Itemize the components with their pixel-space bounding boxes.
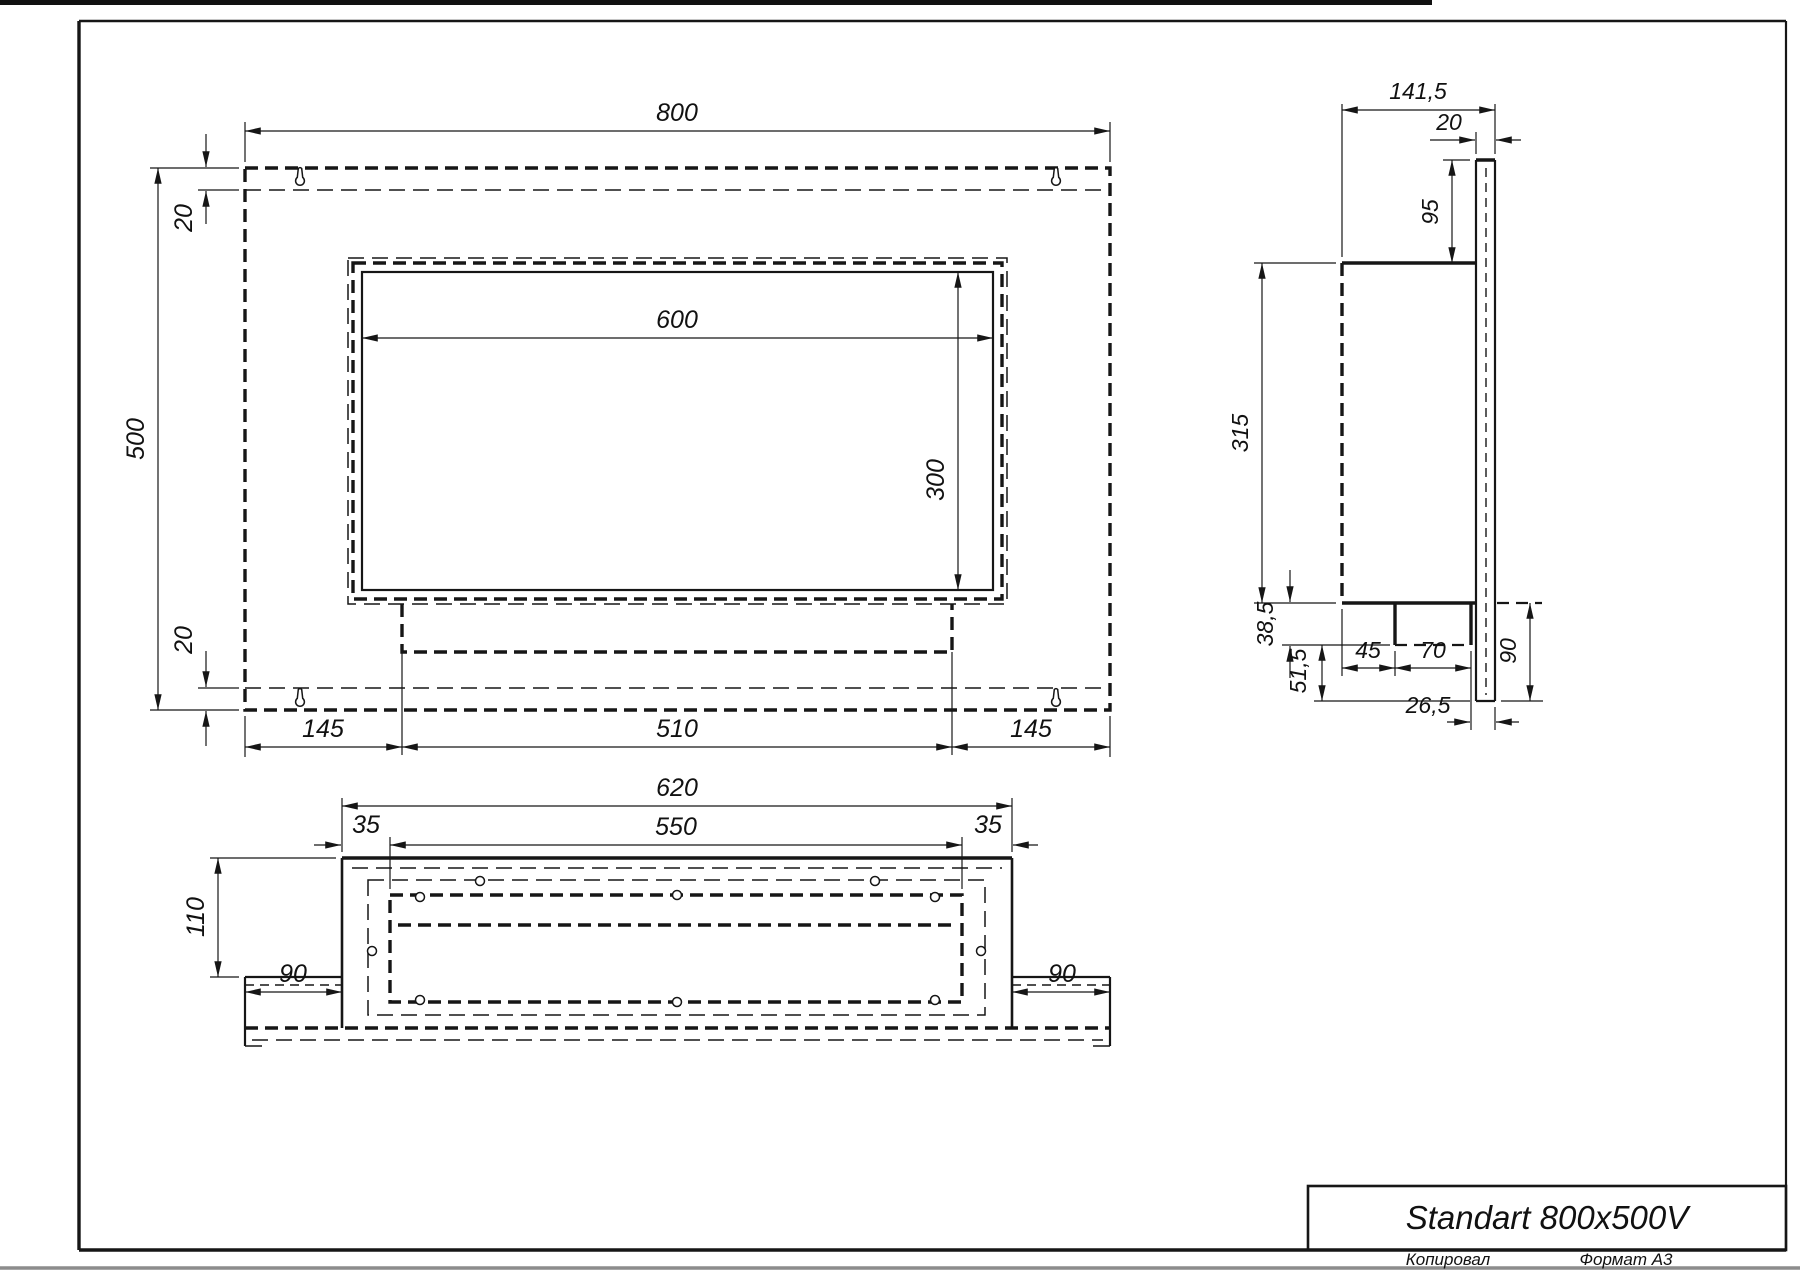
dim-front-top-flange: 20 [170, 204, 198, 233]
stamp-format-label: Формат A3 [1579, 1250, 1673, 1269]
dim-left-margin: 145 [302, 715, 344, 743]
screw-hole-icon [931, 996, 940, 1005]
scan-edge-bar [0, 0, 1432, 5]
dim-right-wing: 90 [1048, 960, 1076, 988]
dim-left-wing: 90 [279, 960, 307, 988]
screw-hole-icon [977, 947, 986, 956]
front-view: 800 500 20 20 600 300 145 510 145 [122, 99, 1110, 757]
dim-opening-height: 300 [922, 459, 950, 501]
keyhole-mount-icon [296, 689, 305, 707]
bottom-view: 620 550 35 35 110 90 90 [182, 774, 1110, 1046]
front-panel-outline [245, 168, 1110, 710]
dim-right-margin: 145 [1010, 715, 1052, 743]
screw-hole-icon [673, 998, 682, 1007]
dim-plate-drop: 90 [1495, 638, 1521, 664]
dim-front-height: 500 [122, 418, 150, 460]
dim-tray-width: 510 [656, 715, 698, 743]
dim-step-a: 38,5 [1252, 601, 1278, 646]
dim-body-width: 620 [656, 774, 698, 802]
drawing-sheet: 800 500 20 20 600 300 145 510 145 [0, 0, 1800, 1273]
burner-hidden-outline [390, 895, 962, 1002]
dim-top-offset: 95 [1417, 199, 1443, 225]
dim-plate-thickness: 20 [1435, 109, 1462, 135]
screw-hole-icon [416, 893, 425, 902]
tray-hidden-outline [368, 880, 985, 1015]
screw-hole-icon [416, 996, 425, 1005]
dim-depth: 110 [182, 897, 210, 937]
dim-total-depth: 141,5 [1389, 78, 1447, 104]
title-block: Standart 800x500V Копировал Формат A3 [1308, 1186, 1786, 1269]
dim-opening-width: 600 [656, 306, 698, 334]
screw-hole-icon [673, 891, 682, 900]
dim-bottom-lip: 26,5 [1405, 692, 1451, 718]
dim-burner-offset: 45 [1355, 637, 1381, 663]
dim-front-width: 800 [656, 99, 698, 127]
dim-tray-width-bottom: 550 [655, 813, 697, 841]
dim-front-bottom-flange: 20 [170, 626, 198, 655]
stamp-copied-label: Копировал [1406, 1250, 1491, 1269]
screw-hole-icon [368, 947, 377, 956]
screw-hole-icon [931, 893, 940, 902]
side-view: 141,5 20 95 315 38,5 51,5 45 70 26,5 90 [1227, 78, 1543, 730]
screw-hole-icon [871, 877, 880, 886]
dim-step-b: 51,5 [1285, 648, 1311, 693]
keyhole-mount-icon [1052, 689, 1061, 707]
drawing-title: Standart 800x500V [1406, 1199, 1692, 1236]
dim-body-height: 315 [1227, 414, 1253, 453]
keyhole-mount-icon [296, 168, 305, 186]
dim-right-inset: 35 [974, 811, 1002, 839]
dim-burner-depth: 70 [1420, 637, 1446, 663]
screw-hole-icon [476, 877, 485, 886]
keyhole-mount-icon [1052, 168, 1061, 186]
fuel-tray-outline [402, 604, 952, 652]
dim-left-inset: 35 [352, 811, 380, 839]
